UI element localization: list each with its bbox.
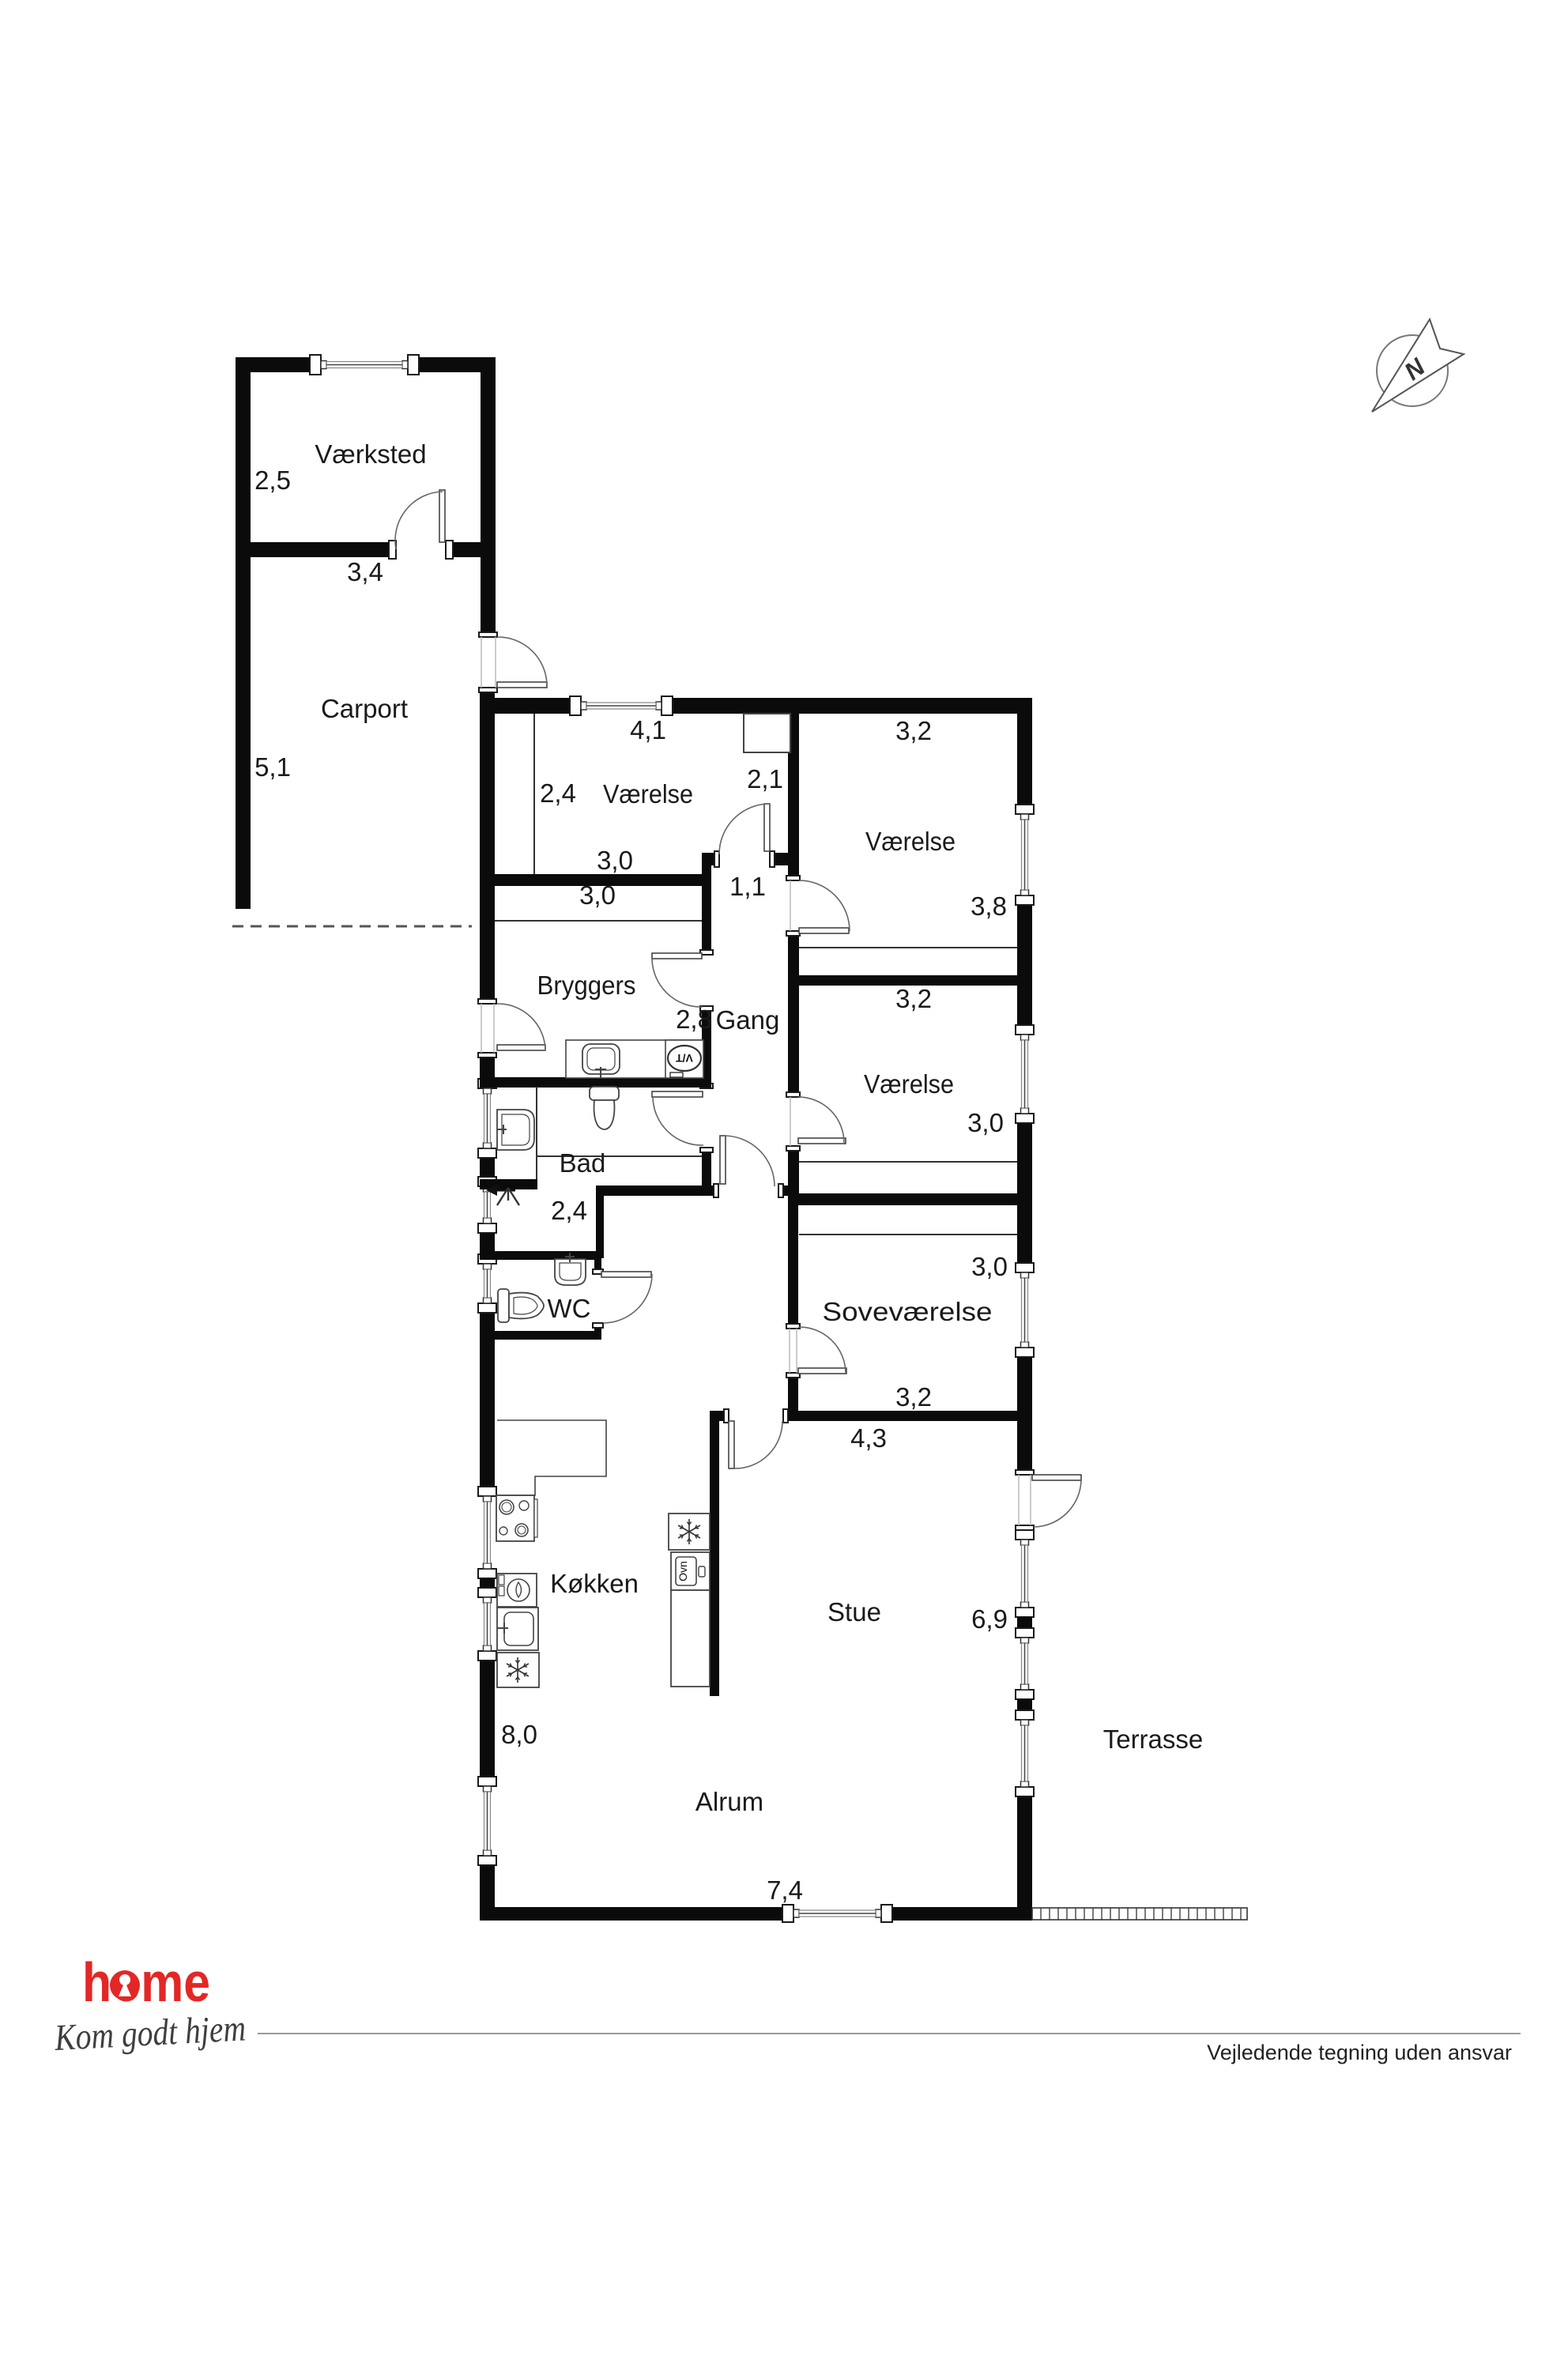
svg-text:Værelse: Værelse xyxy=(865,827,955,856)
svg-text:Soveværelse: Soveværelse xyxy=(823,1297,993,1326)
svg-text:6,9: 6,9 xyxy=(971,1604,1008,1634)
svg-text:Carport: Carport xyxy=(321,694,408,723)
svg-text:Vejledende tegning uden ansvar: Vejledende tegning uden ansvar xyxy=(1207,2041,1512,2064)
svg-text:Alrum: Alrum xyxy=(695,1787,763,1816)
svg-text:WC: WC xyxy=(548,1294,591,1323)
svg-text:3,2: 3,2 xyxy=(895,984,932,1013)
svg-text:2,4: 2,4 xyxy=(540,778,576,808)
svg-text:3,0: 3,0 xyxy=(971,1252,1008,1281)
svg-text:Bryggers: Bryggers xyxy=(537,971,636,1000)
svg-text:3,4: 3,4 xyxy=(347,557,383,586)
svg-text:2,4: 2,4 xyxy=(551,1196,587,1225)
svg-text:2,8: 2,8 xyxy=(676,1005,712,1034)
svg-text:Ovn: Ovn xyxy=(677,1561,689,1581)
svg-text:8,0: 8,0 xyxy=(501,1720,537,1749)
svg-text:2,1: 2,1 xyxy=(747,764,783,794)
svg-text:4,3: 4,3 xyxy=(850,1423,887,1453)
svg-text:3,0: 3,0 xyxy=(967,1108,1004,1137)
svg-text:Værksted: Værksted xyxy=(315,439,426,469)
svg-text:Bad: Bad xyxy=(560,1148,606,1178)
svg-text:Terrasse: Terrasse xyxy=(1103,1725,1204,1754)
svg-text:Værelse: Værelse xyxy=(603,779,693,809)
svg-text:2,5: 2,5 xyxy=(254,466,291,495)
svg-text:4,1: 4,1 xyxy=(630,715,666,744)
svg-text:3,2: 3,2 xyxy=(895,1382,932,1412)
svg-text:Stue: Stue xyxy=(827,1597,881,1627)
svg-text:1,1: 1,1 xyxy=(729,872,766,901)
svg-text:3,2: 3,2 xyxy=(895,716,932,745)
svg-text:Gang: Gang xyxy=(716,1005,780,1035)
svg-text:V/T: V/T xyxy=(676,1052,693,1065)
svg-text:3,8: 3,8 xyxy=(971,892,1007,921)
svg-text:5,1: 5,1 xyxy=(254,752,291,782)
svg-text:home: home xyxy=(82,1951,210,2013)
svg-text:7,4: 7,4 xyxy=(767,1875,803,1905)
svg-text:3,0: 3,0 xyxy=(597,846,633,875)
svg-text:Værelse: Værelse xyxy=(864,1069,954,1099)
svg-text:Køkken: Køkken xyxy=(550,1569,639,1598)
svg-text:3,0: 3,0 xyxy=(579,880,616,910)
